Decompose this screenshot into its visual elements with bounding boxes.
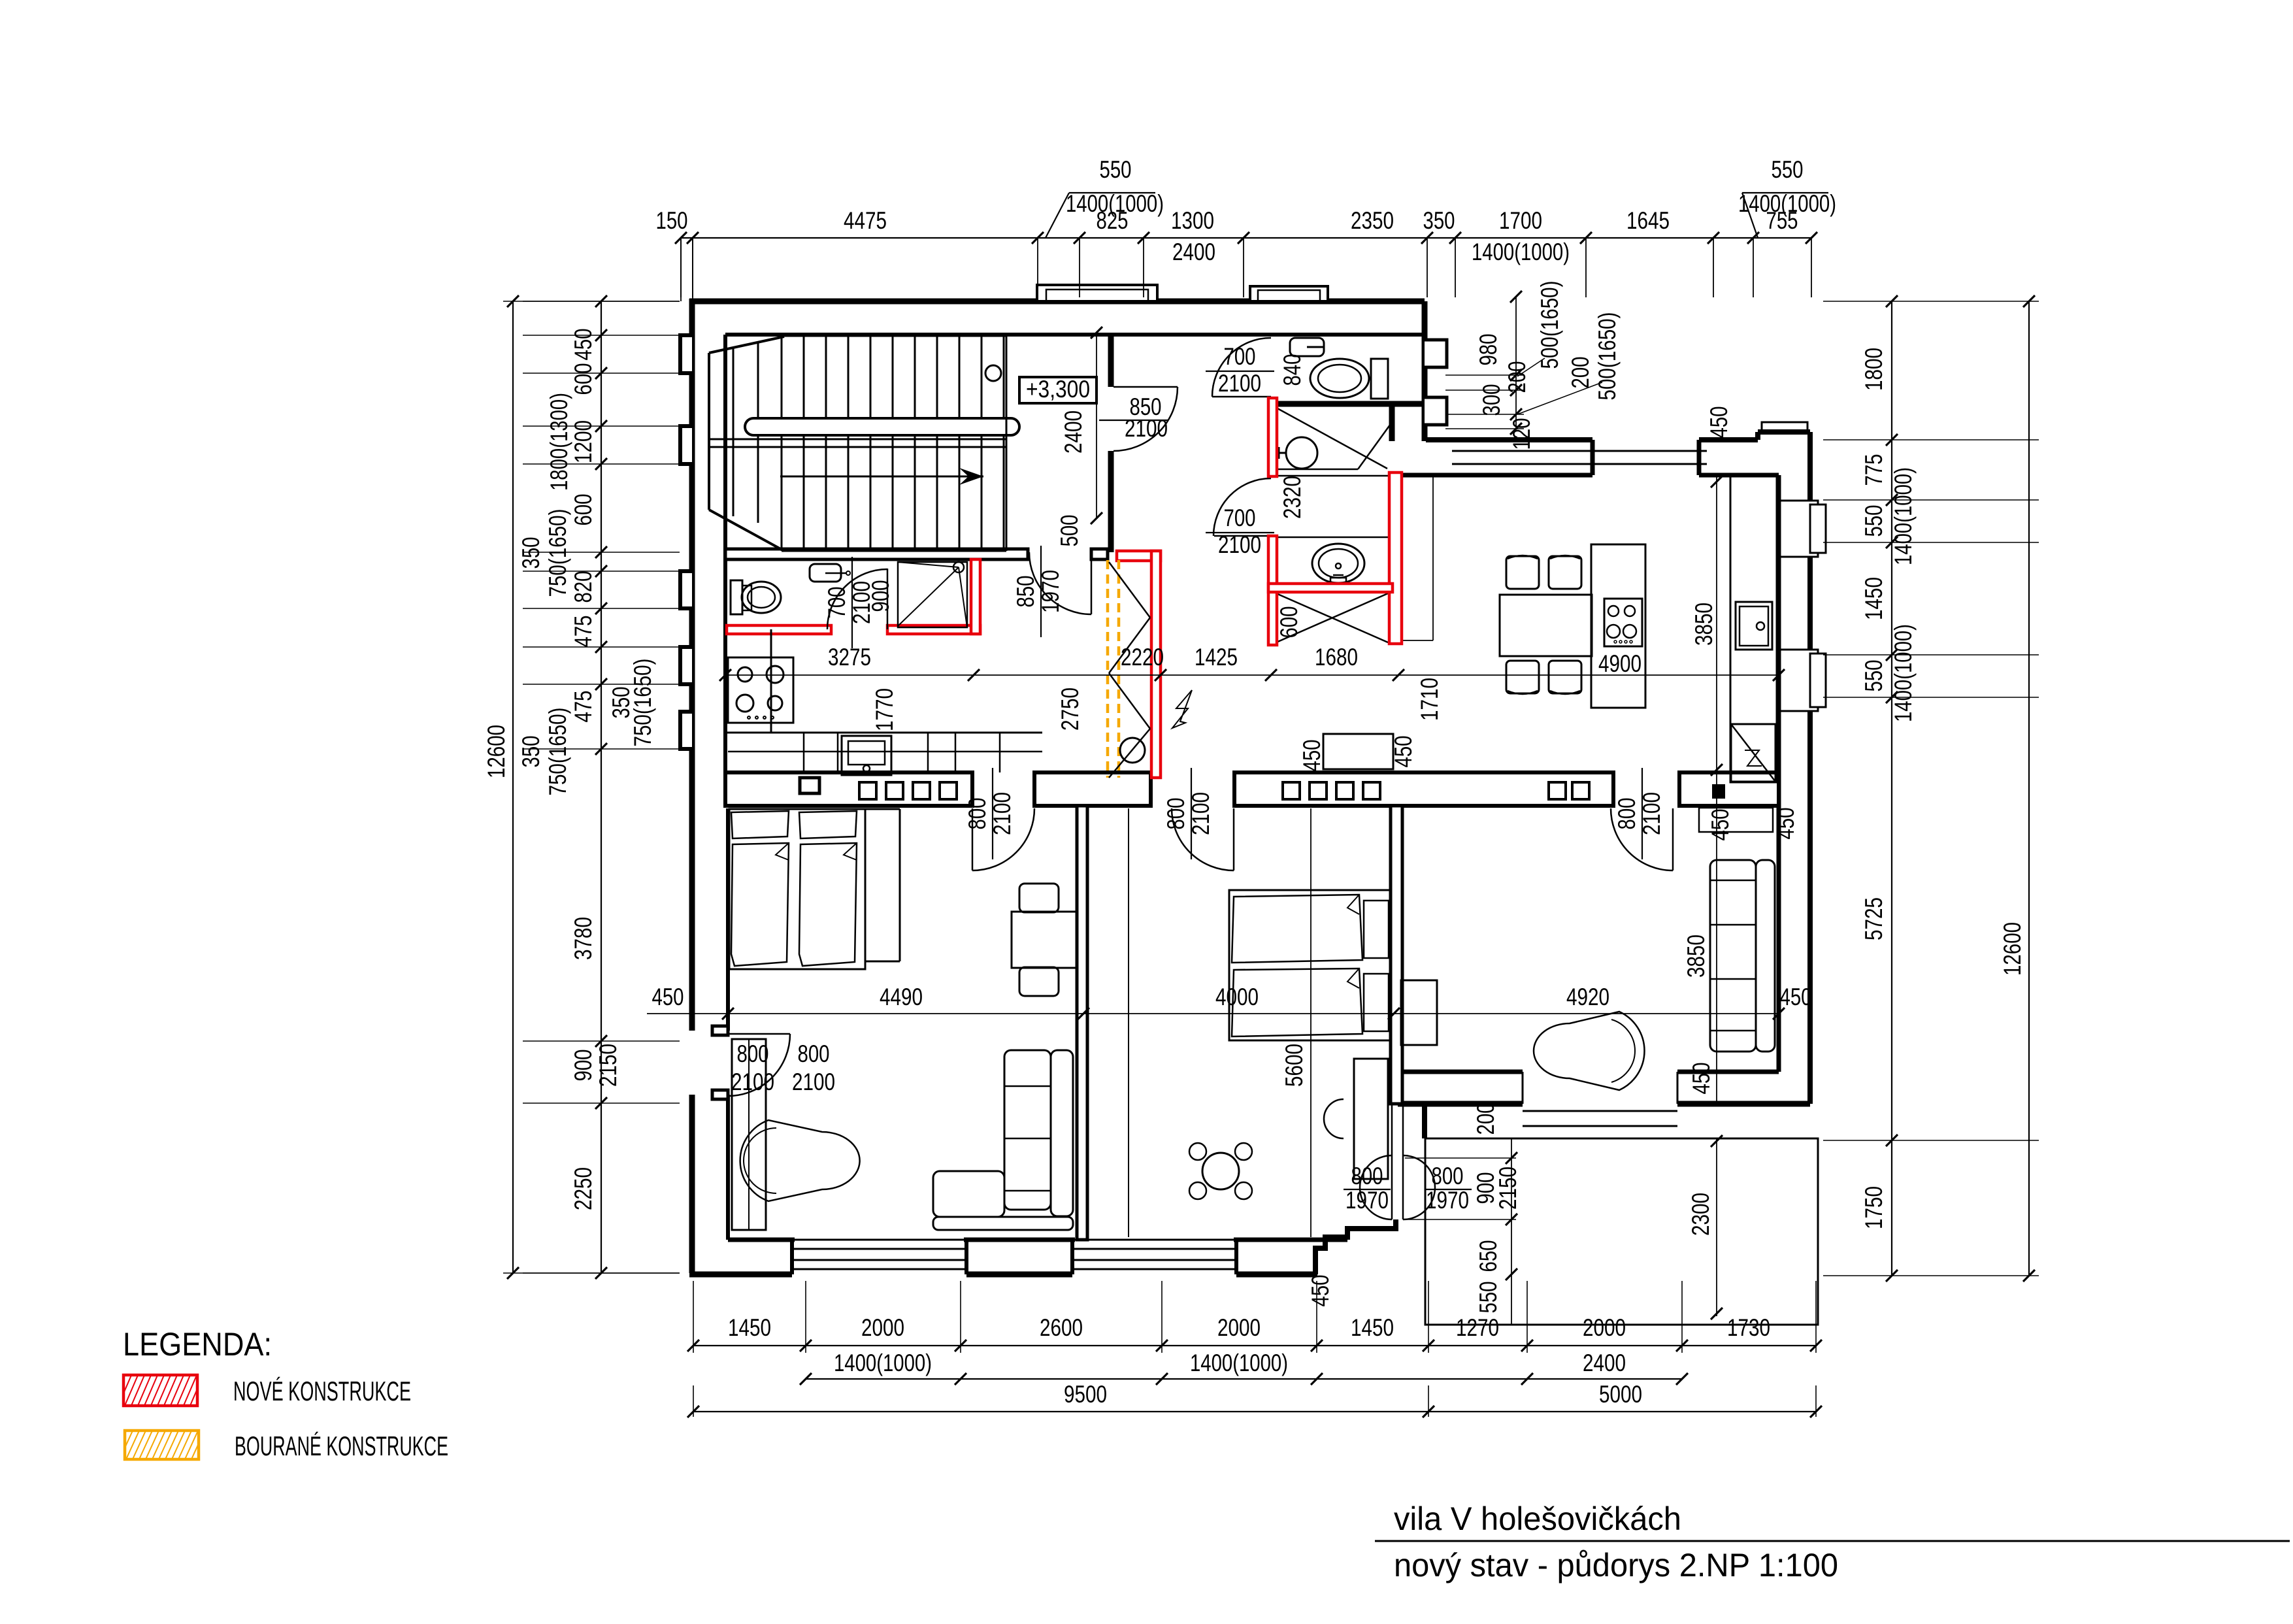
svg-text:800: 800: [1351, 1163, 1383, 1189]
svg-text:550: 550: [1475, 1282, 1502, 1314]
svg-text:980: 980: [1475, 334, 1502, 366]
svg-text:2100: 2100: [1125, 415, 1168, 442]
svg-text:2000: 2000: [861, 1314, 904, 1341]
svg-text:2150: 2150: [595, 1044, 621, 1087]
svg-text:NOVÉ KONSTRUKCE: NOVÉ KONSTRUKCE: [233, 1376, 411, 1406]
svg-text:5000: 5000: [1599, 1381, 1642, 1408]
svg-text:12600: 12600: [1999, 922, 2026, 976]
svg-text:2250: 2250: [570, 1167, 597, 1210]
svg-text:450: 450: [652, 984, 684, 1010]
svg-text:1200: 1200: [570, 420, 597, 463]
svg-text:600: 600: [570, 494, 597, 526]
svg-text:1450: 1450: [1351, 1314, 1394, 1341]
svg-text:820: 820: [570, 571, 597, 603]
svg-text:1400(1000): 1400(1000): [1190, 1350, 1288, 1376]
svg-text:800: 800: [1613, 798, 1640, 830]
svg-text:775: 775: [1860, 454, 1887, 486]
svg-text:4490: 4490: [880, 984, 923, 1010]
svg-text:2220: 2220: [1121, 644, 1164, 671]
svg-text:5725: 5725: [1860, 897, 1887, 940]
svg-text:9500: 9500: [1064, 1381, 1107, 1408]
svg-text:3780: 3780: [570, 917, 597, 960]
svg-text:1270: 1270: [1456, 1314, 1499, 1341]
svg-text:1970: 1970: [1426, 1187, 1469, 1214]
svg-text:3275: 3275: [828, 644, 871, 671]
svg-text:450: 450: [570, 329, 597, 361]
svg-text:2100: 2100: [792, 1069, 835, 1095]
svg-text:700: 700: [1224, 505, 1256, 531]
svg-text:650: 650: [1475, 1240, 1502, 1272]
svg-text:4000: 4000: [1215, 984, 1259, 1010]
svg-text:BOURANÉ KONSTRUKCE: BOURANÉ KONSTRUKCE: [235, 1431, 448, 1461]
svg-text:600: 600: [1276, 606, 1302, 638]
svg-text:750(1650): 750(1650): [629, 659, 656, 747]
svg-text:4900: 4900: [1598, 650, 1641, 677]
svg-text:450: 450: [1772, 808, 1799, 840]
svg-text:450: 450: [1688, 1063, 1715, 1095]
svg-text:500(1650): 500(1650): [1594, 312, 1621, 401]
svg-text:450: 450: [1307, 1275, 1334, 1307]
svg-text:1450: 1450: [728, 1314, 771, 1341]
svg-text:1425: 1425: [1195, 644, 1238, 671]
svg-text:1710: 1710: [1416, 678, 1443, 721]
svg-text:700: 700: [823, 587, 850, 619]
svg-text:700: 700: [1224, 343, 1256, 370]
svg-text:500(1650): 500(1650): [1536, 281, 1563, 369]
svg-text:1750: 1750: [1860, 1186, 1887, 1229]
svg-text:800: 800: [1163, 798, 1189, 830]
svg-text:1645: 1645: [1626, 207, 1670, 234]
svg-text:550: 550: [1772, 156, 1804, 183]
svg-text:600: 600: [570, 363, 597, 395]
svg-text:2000: 2000: [1217, 1314, 1261, 1341]
svg-text:vila V holešovičkách: vila V holešovičkách: [1394, 1500, 1681, 1537]
svg-text:1300: 1300: [1171, 207, 1214, 234]
svg-text:350: 350: [518, 736, 544, 768]
svg-text:450: 450: [1298, 740, 1325, 772]
svg-text:1680: 1680: [1315, 644, 1358, 671]
svg-text:2150: 2150: [1494, 1167, 1521, 1210]
svg-text:450: 450: [1780, 984, 1812, 1010]
svg-text:4920: 4920: [1566, 984, 1609, 1010]
svg-text:450: 450: [1390, 736, 1417, 768]
svg-text:1400(1000): 1400(1000): [1890, 624, 1917, 722]
svg-text:2300: 2300: [1687, 1193, 1714, 1236]
svg-text:2400: 2400: [1583, 1350, 1626, 1376]
svg-text:550: 550: [1860, 660, 1887, 692]
svg-text:550: 550: [1860, 505, 1887, 537]
svg-text:500: 500: [1056, 515, 1083, 547]
svg-text:350: 350: [518, 537, 544, 569]
svg-text:800: 800: [964, 798, 991, 830]
svg-text:1400(1000): 1400(1000): [1066, 190, 1164, 217]
svg-text:1800: 1800: [1860, 348, 1887, 391]
svg-text:450: 450: [1706, 406, 1732, 439]
svg-text:nový stav - půdorys 2.NP 1:100: nový stav - půdorys 2.NP 1:100: [1394, 1547, 1838, 1583]
svg-text:2350: 2350: [1351, 207, 1394, 234]
svg-text:1400(1000): 1400(1000): [1472, 239, 1570, 265]
svg-text:1970: 1970: [1345, 1187, 1389, 1214]
svg-text:800: 800: [737, 1040, 769, 1067]
svg-text:550: 550: [1100, 156, 1132, 183]
svg-text:1400(1000): 1400(1000): [1890, 467, 1917, 565]
svg-text:2600: 2600: [1040, 1314, 1083, 1341]
svg-text:300: 300: [1478, 384, 1505, 416]
svg-text:200: 200: [1472, 1103, 1499, 1135]
svg-text:850: 850: [1012, 576, 1039, 608]
svg-text:5600: 5600: [1281, 1044, 1308, 1087]
svg-text:900: 900: [570, 1050, 597, 1082]
svg-text:1770: 1770: [871, 688, 898, 731]
svg-text:1700: 1700: [1499, 207, 1542, 234]
svg-text:2100: 2100: [731, 1069, 774, 1095]
svg-text:800: 800: [1432, 1163, 1464, 1189]
svg-text:12600: 12600: [483, 725, 510, 778]
svg-text:1450: 1450: [1860, 577, 1887, 620]
svg-text:200: 200: [1567, 357, 1594, 389]
svg-text:2750: 2750: [1057, 688, 1083, 731]
svg-text:2100: 2100: [1218, 370, 1261, 397]
svg-text:3850: 3850: [1683, 935, 1709, 978]
svg-text:2400: 2400: [1172, 239, 1215, 265]
svg-text:1400(1000): 1400(1000): [1738, 190, 1836, 217]
svg-text:1800(1300): 1800(1300): [546, 393, 572, 491]
svg-text:2100: 2100: [1218, 531, 1261, 558]
svg-text:+3,300: +3,300: [1026, 376, 1090, 403]
svg-text:2000: 2000: [1583, 1314, 1626, 1341]
svg-text:3850: 3850: [1691, 603, 1717, 646]
svg-text:2400: 2400: [1060, 410, 1087, 454]
svg-text:450: 450: [1707, 809, 1734, 841]
svg-text:1730: 1730: [1727, 1314, 1770, 1341]
svg-text:750(1650): 750(1650): [544, 708, 571, 796]
svg-text:475: 475: [570, 691, 597, 723]
svg-text:1400(1000): 1400(1000): [834, 1350, 932, 1376]
svg-text:840: 840: [1279, 354, 1306, 386]
svg-text:4475: 4475: [844, 207, 887, 234]
svg-text:150: 150: [656, 207, 688, 234]
svg-text:750(1650): 750(1650): [544, 509, 571, 597]
svg-text:2320: 2320: [1279, 476, 1306, 519]
svg-text:LEGENDA:: LEGENDA:: [123, 1326, 272, 1363]
svg-text:350: 350: [1423, 207, 1455, 234]
svg-text:800: 800: [798, 1040, 830, 1067]
svg-text:475: 475: [570, 616, 597, 648]
